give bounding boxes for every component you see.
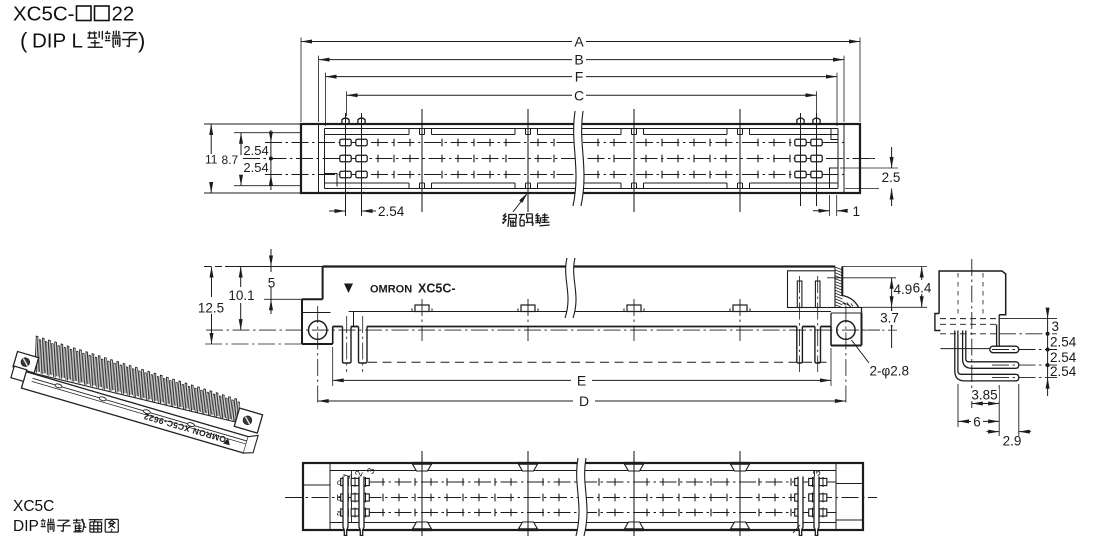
svg-text:C: C [574,87,584,103]
svg-text:2-φ2.8: 2-φ2.8 [870,364,910,379]
svg-text:DIP: DIP [13,518,39,535]
svg-text:(: ( [20,28,28,53]
svg-text:3: 3 [1052,319,1060,334]
svg-text:OMRON: OMRON [370,284,412,296]
svg-text:1: 1 [853,204,861,219]
svg-text:D: D [579,393,589,409]
svg-text:XC5C: XC5C [13,498,54,515]
svg-text:E: E [577,373,586,389]
svg-text:6.4: 6.4 [913,281,932,296]
svg-text:F: F [575,69,584,85]
svg-text:2.9: 2.9 [1003,434,1022,449]
svg-text:12.5: 12.5 [198,301,224,316]
svg-text:a: a [337,508,342,518]
svg-text:2.54: 2.54 [243,160,268,175]
svg-text:2.54: 2.54 [1050,335,1077,350]
svg-text:22: 22 [112,3,135,26]
svg-text:4.9: 4.9 [894,282,913,297]
svg-text:A: A [574,34,584,50]
svg-text:XC5C-: XC5C- [13,3,75,26]
svg-text:DIP L: DIP L [32,30,83,53]
svg-text:6: 6 [973,415,981,430]
svg-text:): ) [138,28,145,53]
svg-text:11: 11 [205,153,218,167]
svg-text:5: 5 [268,276,276,291]
svg-text:3.7: 3.7 [880,311,899,326]
svg-text:2.54: 2.54 [378,204,405,219]
svg-text:b: b [337,493,342,503]
svg-text:2.54: 2.54 [1050,364,1077,379]
svg-text:3.85: 3.85 [971,388,997,403]
svg-text:2.54: 2.54 [1050,350,1077,365]
svg-text:2.5: 2.5 [882,170,901,185]
svg-text:8.7: 8.7 [222,153,239,167]
svg-text:XC5C-: XC5C- [418,282,456,296]
svg-text:10.1: 10.1 [228,288,254,303]
svg-text:B: B [574,52,583,68]
svg-text:2.54: 2.54 [243,143,268,158]
